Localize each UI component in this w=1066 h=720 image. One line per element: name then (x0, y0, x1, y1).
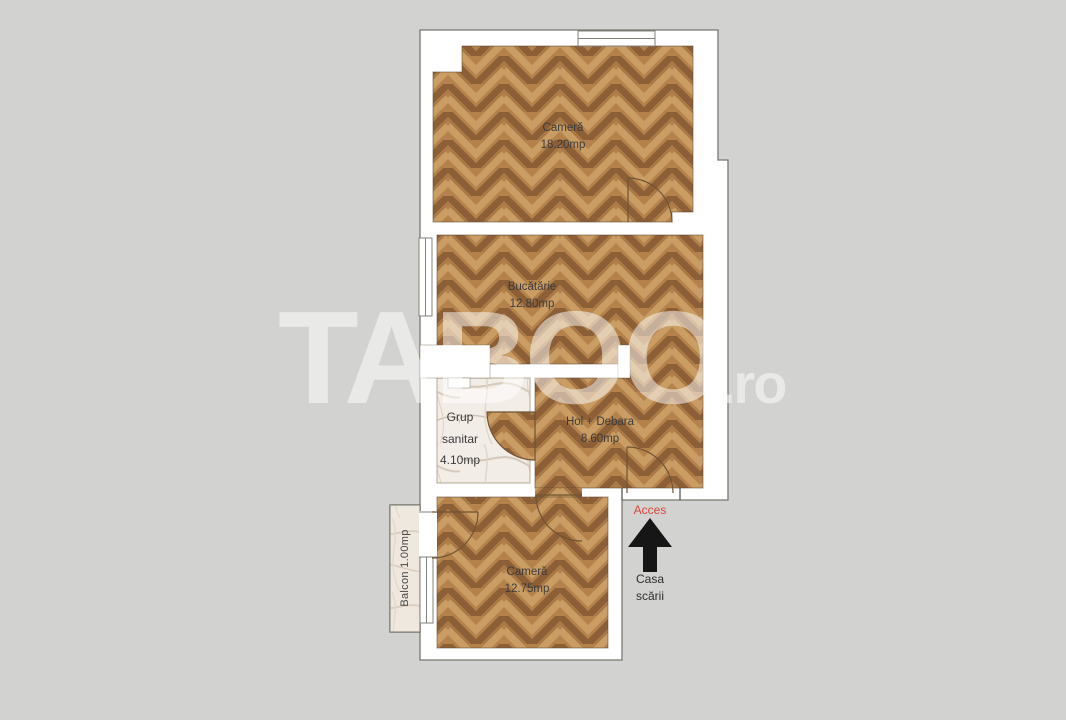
room-name: Hol + Debara (566, 414, 634, 431)
room-name: Cameră (505, 564, 550, 581)
label-acces: Acces (634, 502, 667, 519)
hall-to-room-passage-floor (535, 488, 582, 497)
floor-plan-drawing (0, 0, 1066, 720)
staircase-line1: Casa (636, 571, 664, 588)
room-area: 12.75mp (505, 581, 550, 598)
room-name: Bucătărie (508, 279, 557, 296)
balcony-door-opening (419, 511, 437, 557)
label-camera-bottom: Cameră 12.75mp (505, 564, 550, 597)
room-name-line1: Grup (440, 407, 480, 429)
room-name-line2: sanitar (440, 429, 480, 451)
room-area: 4.10mp (440, 450, 480, 472)
room-area: 8.60mp (566, 431, 634, 448)
label-casa-scarii: Casa scării (636, 571, 664, 605)
room-name: Cameră (541, 120, 586, 137)
staircase-line2: scării (636, 588, 664, 605)
up-arrow-icon (628, 518, 672, 572)
window-kitchen-left (419, 238, 432, 316)
window-bottom-room-left (420, 556, 433, 623)
floor-plan-canvas: Cameră 18.20mp Bucătărie 12.80mp Grup sa… (0, 0, 1066, 720)
label-camera-top: Cameră 18.20mp (541, 120, 586, 153)
room-area: 18.20mp (541, 137, 586, 154)
label-grup-sanitar: Grup sanitar 4.10mp (440, 407, 480, 472)
window-top (578, 31, 655, 46)
label-bucatarie: Bucătărie 12.80mp (508, 279, 557, 312)
label-balcon: Balcon 1.00mp (398, 529, 414, 606)
label-hol-debara: Hol + Debara 8.60mp (566, 414, 634, 447)
room-area: 12.80mp (508, 296, 557, 313)
